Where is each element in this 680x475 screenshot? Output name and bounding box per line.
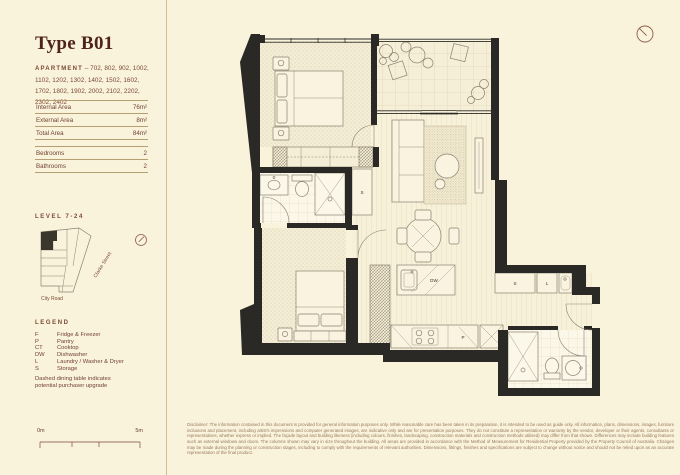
legend-heading: LEGEND [35, 320, 70, 326]
legend-item: CTCooktop [35, 345, 155, 352]
room-label: Bathrooms [36, 163, 66, 170]
legend-label: Fridge & Freezer [57, 332, 101, 339]
apartment-label: APARTMENT [35, 66, 83, 72]
area-value: 84m² [133, 130, 147, 137]
scale-bar: 0m 5m [37, 428, 143, 454]
floor-plan: DW P S L S [226, 14, 622, 410]
street-label: Clarke Street [93, 251, 114, 279]
area-value: 8m² [136, 117, 147, 124]
dishwasher-label: DW [430, 278, 438, 283]
storage-label: S [513, 281, 516, 286]
table-row: Internal Area76m² [35, 100, 148, 113]
area-label: Internal Area [36, 104, 71, 111]
area-label: Total Area [36, 130, 64, 137]
table-row: Bathrooms2 [35, 159, 148, 172]
legend-abbr: CT [35, 345, 57, 352]
tall-cupboard [370, 265, 390, 347]
scale-start: 0m [37, 428, 45, 434]
table-row: Bedrooms2 [35, 146, 148, 159]
legend-label: Storage [57, 366, 77, 373]
legend-item: SStorage [35, 366, 155, 373]
disclaimer-text: Disclaimer: The information contained in… [187, 422, 674, 455]
legend-label: Dishwasher [57, 352, 87, 359]
scale-bar-line [37, 441, 143, 449]
kitchen-island [397, 265, 455, 295]
vertical-divider [166, 0, 167, 475]
legend-item: DWDishwasher [35, 352, 155, 359]
legend-abbr: P [35, 339, 57, 346]
table-row: Total Area84m² [35, 126, 148, 139]
key-plan: Clarke Street City Road [33, 226, 123, 304]
legend-label: Cooktop [57, 345, 79, 352]
road-label: City Road [41, 296, 63, 302]
north-compass-icon [634, 23, 656, 45]
area-label: External Area [36, 117, 73, 124]
coffee-table [435, 154, 459, 178]
area-value: 76m² [133, 104, 147, 111]
toilet [546, 358, 559, 374]
page-title: Type B01 [35, 33, 114, 55]
brochure-page: Type B01 APARTMENT – 702, 802, 902, 1002… [0, 0, 680, 475]
scale-end: 5m [135, 428, 143, 434]
keyplan-unit-highlight [41, 231, 57, 251]
area-table: Internal Area76m² External Area8m² Total… [35, 100, 148, 140]
legend-item: FFridge & Freezer [35, 332, 155, 339]
rooms-table: Bedrooms2 Bathrooms2 [35, 146, 148, 173]
storage-closet-label: S [360, 190, 363, 195]
storage-laundry-units [495, 273, 572, 293]
legend-abbr: DW [35, 352, 57, 359]
legend-abbr: L [35, 359, 57, 366]
legend-item: PPantry [35, 339, 155, 346]
room-label: Bedrooms [36, 150, 64, 157]
table-row: External Area8m² [35, 113, 148, 126]
room-value: 2 [144, 150, 147, 157]
legend-list: FFridge & Freezer PPantry CTCooktop DWDi… [35, 332, 155, 372]
laundry-label: L [546, 281, 549, 286]
room-value: 2 [144, 163, 147, 170]
legend-note: Dashed dining table indicates potential … [35, 376, 123, 389]
legend-item: LLaundry / Washer & Dryer [35, 359, 155, 366]
level-label: LEVEL 7-24 [35, 214, 84, 220]
legend-label: Laundry / Washer & Dryer [57, 359, 124, 366]
pantry-label: P [461, 335, 464, 340]
compass-icon [133, 232, 149, 248]
legend-abbr: F [35, 332, 57, 339]
legend-abbr: S [35, 366, 57, 373]
legend-label: Pantry [57, 339, 74, 346]
kitchen-counter [391, 325, 478, 348]
